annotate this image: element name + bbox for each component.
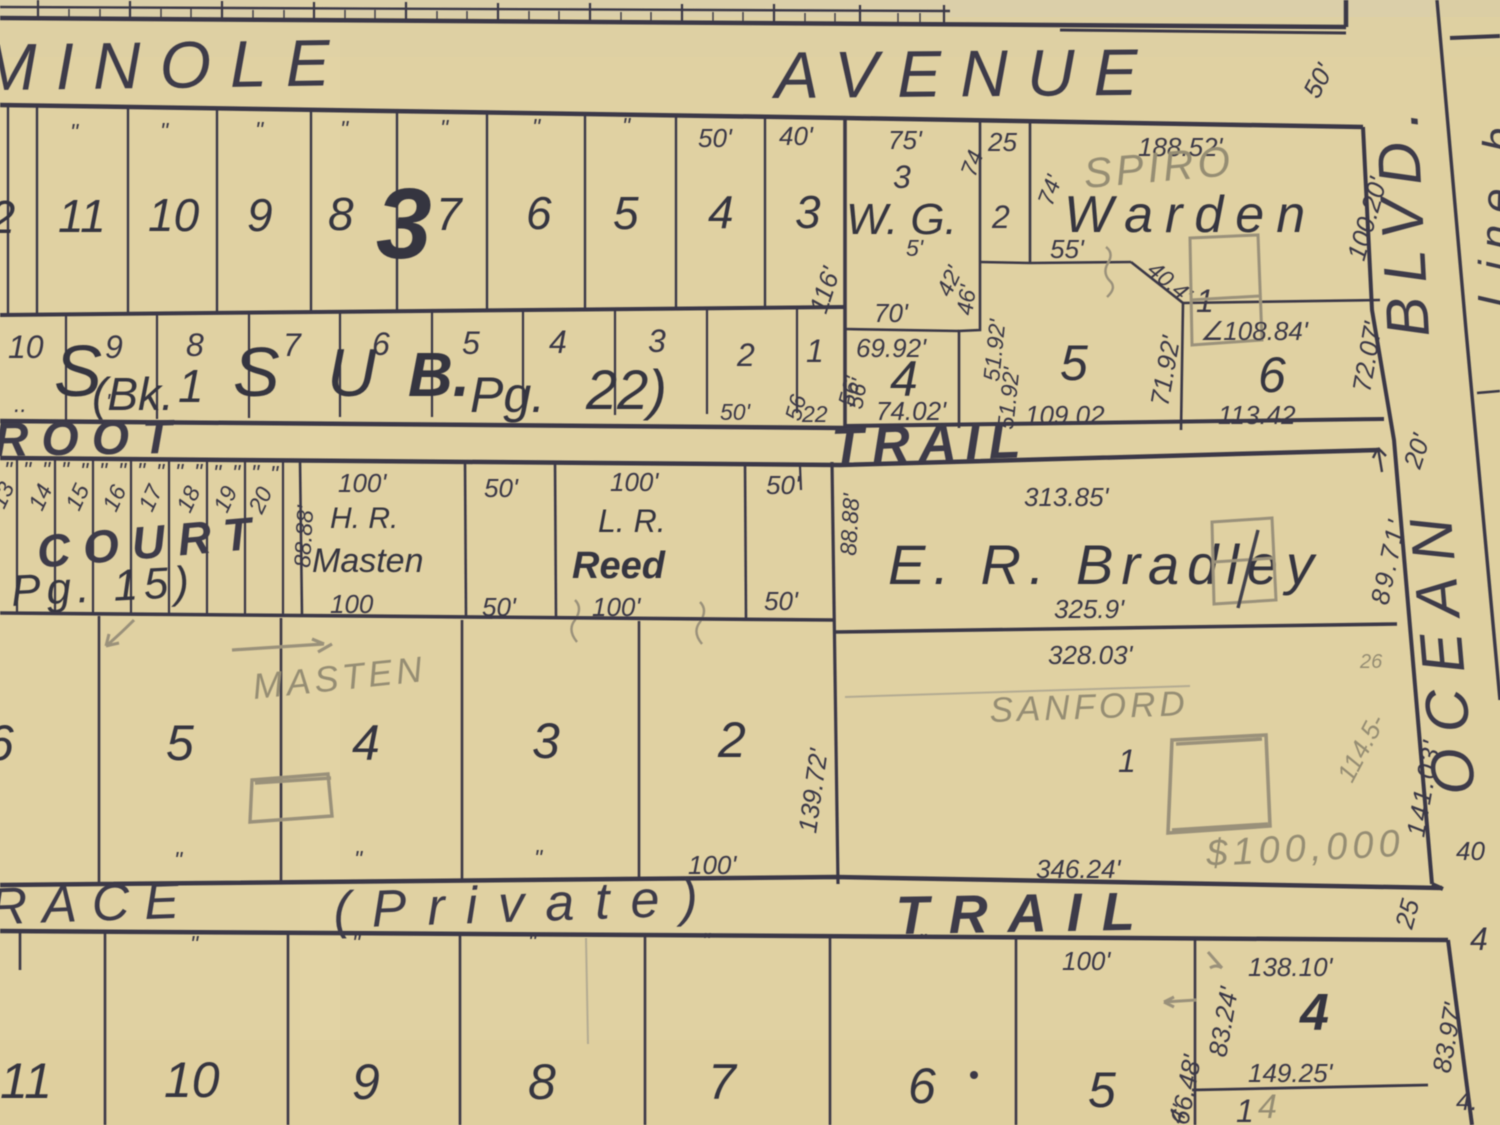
svg-text:B.: B.: [408, 341, 470, 410]
svg-text:1: 1: [806, 333, 824, 369]
svg-text:10: 10: [164, 1052, 220, 1108]
svg-text:4: 4: [549, 324, 567, 360]
svg-text:6: 6: [1258, 347, 1286, 403]
svg-text:40': 40': [779, 121, 814, 151]
svg-text:Pg. 15): Pg. 15): [10, 557, 196, 616]
svg-text:46': 46': [951, 282, 981, 317]
svg-text:SANFORD: SANFORD: [989, 684, 1189, 730]
svg-text:3: 3: [795, 186, 821, 238]
svg-text:9: 9: [105, 329, 123, 365]
svg-text:4: 4: [352, 715, 380, 771]
svg-text:S: S: [233, 333, 280, 411]
svg-text:6: 6: [526, 187, 552, 239]
svg-text:∠108.84': ∠108.84': [1200, 316, 1309, 346]
svg-text:50': 50': [764, 586, 799, 616]
svg-text:2: 2: [717, 712, 746, 768]
svg-text:56': 56': [841, 375, 872, 411]
svg-text:12: 12: [0, 191, 15, 243]
svg-text:328.03': 328.03': [1048, 640, 1134, 670]
svg-text:26: 26: [1359, 651, 1383, 673]
svg-text:100': 100': [1062, 946, 1111, 976]
svg-text:109.02: 109.02: [1025, 400, 1105, 430]
svg-text:325.9': 325.9': [1054, 594, 1125, 624]
svg-text:6: 6: [908, 1058, 936, 1114]
svg-text:9: 9: [247, 189, 273, 241]
svg-text:7: 7: [283, 327, 302, 363]
svg-text:3: 3: [532, 713, 560, 769]
svg-text:8: 8: [328, 188, 354, 240]
svg-text:8: 8: [528, 1054, 556, 1110]
svg-text:149.25': 149.25': [1248, 1058, 1334, 1088]
svg-text:TRAIL: TRAIL: [895, 881, 1155, 946]
svg-text:313.85': 313.85': [1024, 482, 1110, 512]
svg-text:9: 9: [352, 1054, 380, 1110]
svg-text:1: 1: [1236, 1093, 1254, 1125]
svg-text:BLVD.: BLVD.: [1363, 96, 1442, 339]
svg-text:RACE: RACE: [0, 871, 195, 936]
svg-text:2: 2: [736, 337, 755, 373]
svg-text:Masten: Masten: [312, 542, 424, 580]
svg-text:55': 55': [1050, 234, 1085, 264]
svg-text:11: 11: [0, 1053, 52, 1109]
svg-text:1: 1: [1118, 743, 1136, 779]
svg-text:50': 50': [720, 399, 752, 425]
svg-text:11: 11: [58, 190, 106, 242]
svg-text:88.88': 88.88': [835, 491, 864, 556]
svg-text:TRAIL: TRAIL: [830, 411, 1030, 476]
svg-text:7: 7: [436, 188, 463, 240]
svg-text:2: 2: [991, 199, 1010, 235]
svg-text:22): 22): [585, 358, 667, 421]
svg-text:5: 5: [613, 187, 639, 239]
svg-text:4.: 4.: [1456, 1086, 1478, 1116]
svg-text:4: 4: [1258, 1088, 1277, 1125]
svg-text:70': 70': [874, 298, 909, 328]
svg-text:5: 5: [166, 715, 194, 771]
svg-text:8: 8: [186, 327, 204, 363]
svg-text:Warden: Warden: [1064, 186, 1317, 244]
svg-text:10: 10: [8, 329, 44, 365]
svg-text:4: 4: [1299, 984, 1329, 1042]
svg-text:5': 5': [906, 235, 925, 261]
svg-text:50': 50': [766, 470, 801, 500]
svg-text:L. R.: L. R.: [598, 503, 666, 539]
svg-text:25: 25: [987, 127, 1017, 157]
svg-text:W. G.: W. G.: [846, 195, 957, 244]
svg-text:5: 5: [1060, 335, 1088, 391]
svg-text:AVENUE: AVENUE: [770, 35, 1156, 112]
svg-text:Pg.: Pg.: [470, 367, 545, 423]
svg-text:113.42: 113.42: [1218, 400, 1296, 430]
svg-text:50': 50': [698, 123, 733, 153]
svg-text:10: 10: [148, 189, 200, 241]
svg-text:E. R. Bradley: E. R. Bradley: [888, 533, 1322, 596]
svg-text:4: 4: [708, 186, 734, 238]
svg-text:50': 50': [484, 473, 519, 503]
svg-text:7: 7: [708, 1054, 738, 1110]
svg-text:U: U: [327, 335, 377, 411]
svg-text:Reed: Reed: [572, 545, 666, 587]
svg-text:40: 40: [1456, 836, 1485, 866]
svg-text:22: 22: [801, 401, 828, 427]
svg-text:4: 4: [1470, 921, 1488, 957]
svg-text:75': 75': [888, 125, 923, 155]
svg-text:6: 6: [0, 715, 14, 771]
svg-text:3: 3: [648, 323, 666, 359]
svg-text:3: 3: [376, 168, 432, 280]
svg-text:100': 100': [610, 467, 659, 497]
svg-text:100': 100': [338, 468, 387, 498]
svg-text:5: 5: [1088, 1062, 1116, 1118]
svg-text:138.10': 138.10': [1248, 952, 1334, 982]
svg-text:MINOLE: MINOLE: [0, 25, 349, 104]
svg-text:H. R.: H. R.: [330, 502, 398, 535]
svg-text:3: 3: [893, 159, 911, 195]
svg-text:1: 1: [178, 360, 204, 412]
